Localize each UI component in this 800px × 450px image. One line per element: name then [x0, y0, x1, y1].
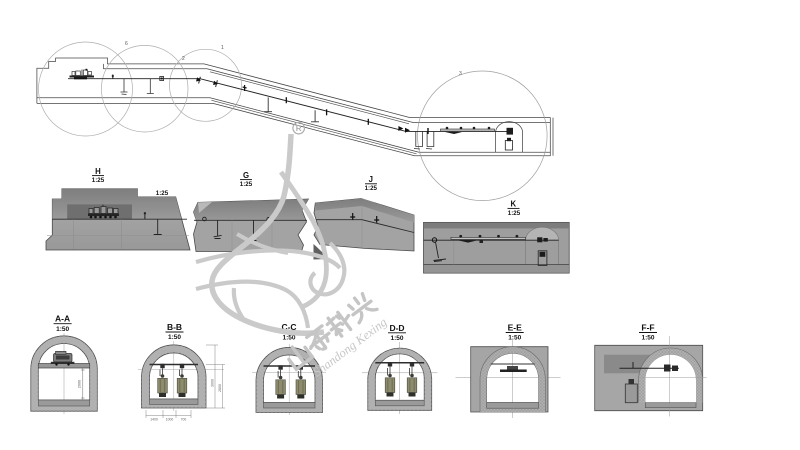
svg-text:R: R — [296, 124, 302, 133]
svg-text:1:50: 1:50 — [508, 335, 521, 342]
svg-text:1000: 1000 — [166, 418, 174, 422]
svg-text:1: 1 — [221, 45, 224, 51]
svg-text:3: 3 — [459, 71, 462, 77]
svg-text:2: 2 — [182, 56, 185, 62]
svg-text:1:25: 1:25 — [365, 185, 378, 192]
svg-text:1:50: 1:50 — [390, 335, 403, 342]
svg-text:1:50: 1:50 — [641, 335, 654, 342]
svg-text:2800: 2800 — [218, 384, 222, 392]
svg-text:1:25: 1:25 — [156, 190, 169, 197]
svg-text:1400: 1400 — [150, 418, 158, 422]
svg-text:1:25: 1:25 — [508, 210, 521, 217]
svg-text:700: 700 — [181, 418, 187, 422]
svg-text:H: H — [95, 167, 101, 176]
svg-text:2000: 2000 — [78, 380, 82, 388]
svg-text:A-A: A-A — [55, 314, 70, 324]
svg-text:1:25: 1:25 — [240, 181, 253, 188]
svg-text:J: J — [369, 175, 373, 184]
svg-text:F-F: F-F — [641, 323, 654, 333]
svg-text:D-D: D-D — [389, 323, 404, 333]
svg-text:3000: 3000 — [211, 379, 215, 387]
svg-text:1:50: 1:50 — [168, 334, 181, 341]
svg-text:6: 6 — [125, 41, 128, 47]
svg-text:K: K — [510, 200, 516, 209]
svg-text:1:25: 1:25 — [92, 177, 105, 184]
svg-text:1:50: 1:50 — [56, 326, 69, 333]
svg-text:G: G — [243, 171, 249, 180]
svg-text:B-B: B-B — [167, 322, 182, 332]
svg-text:E-E: E-E — [508, 323, 523, 333]
